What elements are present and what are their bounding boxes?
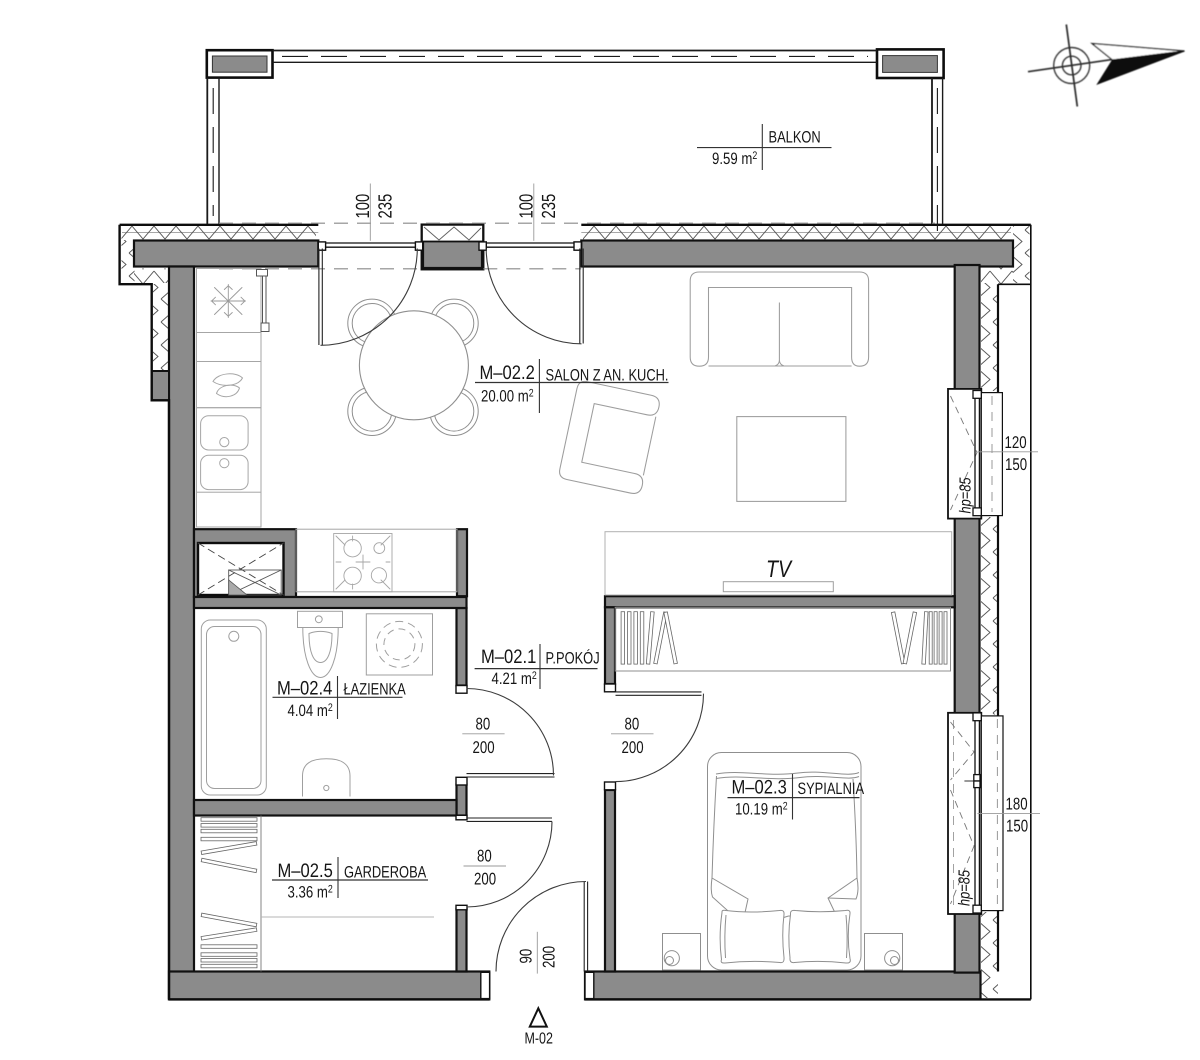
svg-text:M–02.3: M–02.3 (732, 777, 787, 799)
svg-text:4.04 m2: 4.04 m2 (288, 702, 333, 720)
svg-text:200: 200 (474, 870, 496, 889)
svg-text:80: 80 (477, 847, 492, 866)
svg-text:M–02.1: M–02.1 (481, 646, 536, 668)
svg-text:9.59 m2: 9.59 m2 (712, 150, 757, 168)
svg-text:20.00 m2: 20.00 m2 (481, 388, 534, 406)
svg-text:hp=85: hp=85 (957, 870, 974, 906)
svg-text:80: 80 (625, 715, 640, 734)
svg-text:hp=85: hp=85 (958, 477, 975, 513)
svg-text:180: 180 (1006, 795, 1028, 814)
svg-text:200: 200 (540, 946, 559, 968)
svg-text:150: 150 (1006, 817, 1028, 836)
svg-text:M–02.5: M–02.5 (278, 860, 333, 882)
svg-text:M–02.2: M–02.2 (480, 362, 535, 384)
svg-text:100: 100 (517, 194, 538, 219)
svg-text:200: 200 (473, 738, 495, 757)
svg-text:P.POKÓJ: P.POKÓJ (546, 649, 600, 668)
svg-text:M-02: M-02 (525, 1031, 554, 1048)
svg-text:TV: TV (766, 556, 793, 583)
svg-text:90: 90 (517, 949, 536, 964)
svg-text:BALKON: BALKON (769, 129, 821, 147)
svg-text:3.36 m2: 3.36 m2 (288, 884, 333, 902)
svg-text:120: 120 (1005, 433, 1027, 452)
svg-text:10.19 m2: 10.19 m2 (735, 801, 788, 819)
svg-text:4.21 m2: 4.21 m2 (492, 670, 537, 688)
svg-text:200: 200 (622, 738, 644, 757)
svg-text:235: 235 (376, 194, 397, 219)
svg-text:150: 150 (1005, 455, 1027, 474)
svg-text:ŁAZIENKA: ŁAZIENKA (344, 681, 406, 699)
svg-text:235: 235 (539, 194, 560, 219)
svg-text:GARDEROBA: GARDEROBA (344, 864, 426, 882)
svg-text:M–02.4: M–02.4 (277, 678, 332, 700)
svg-text:80: 80 (476, 715, 491, 734)
svg-text:SALON Z AN. KUCH.: SALON Z AN. KUCH. (546, 367, 669, 385)
svg-text:100: 100 (353, 194, 374, 219)
svg-text:SYPIALNIA: SYPIALNIA (798, 780, 865, 798)
